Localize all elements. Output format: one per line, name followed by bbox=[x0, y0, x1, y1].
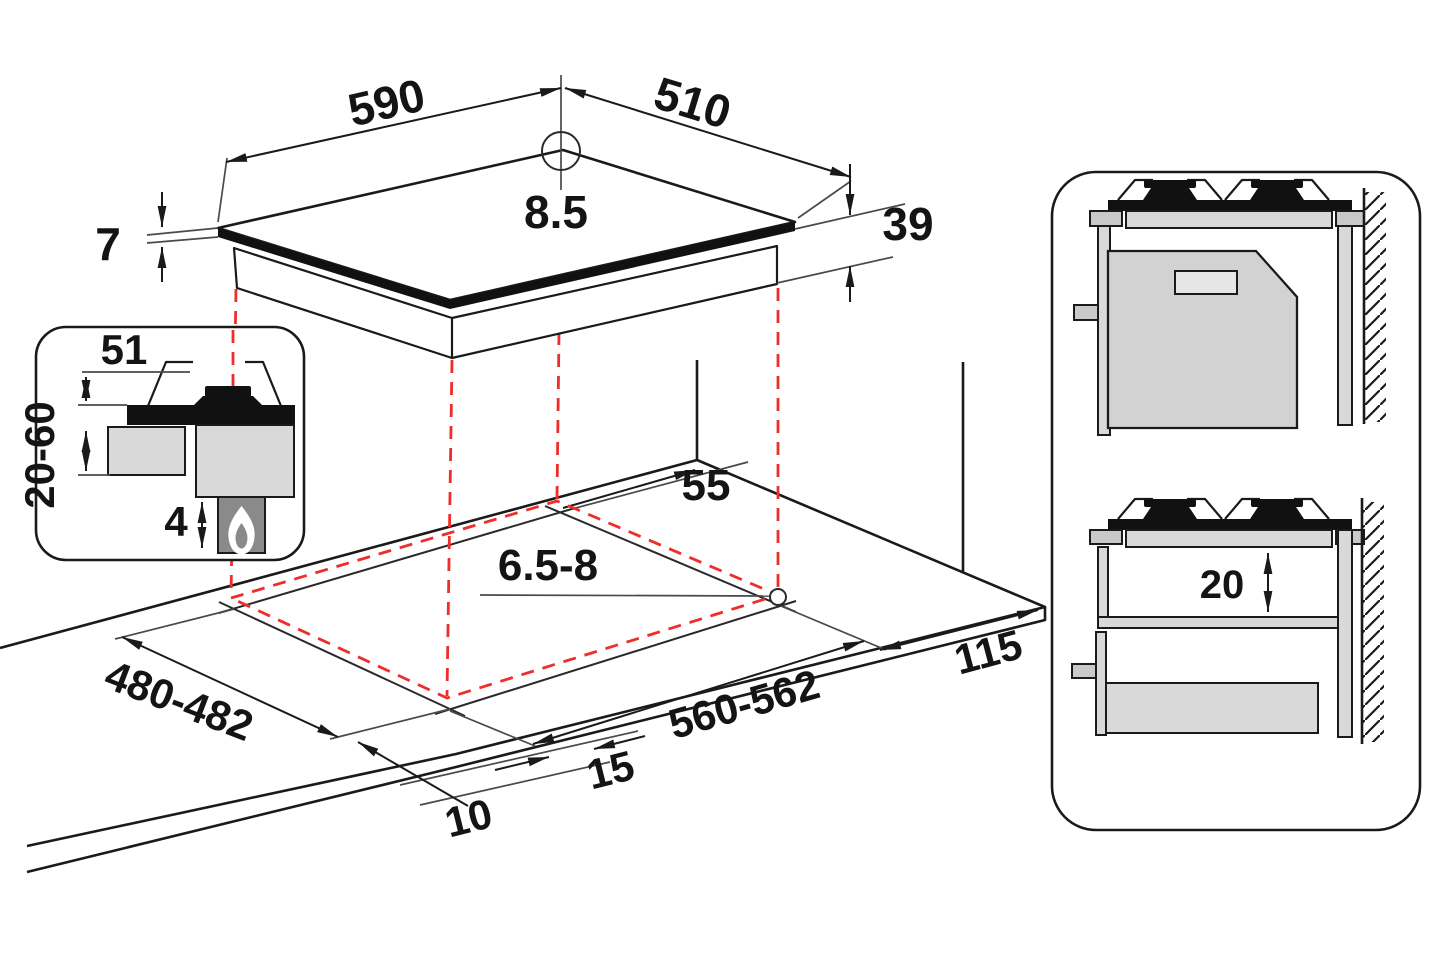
dim-label-glass-thickness: 7 bbox=[95, 218, 121, 270]
cutout-corner-hole-marker bbox=[770, 589, 786, 605]
dim-label-hob-width: 590 bbox=[343, 68, 429, 136]
oven-vent bbox=[1175, 271, 1237, 294]
dim-label-hob-depth: 510 bbox=[648, 67, 737, 139]
cutout-dashed-outline bbox=[231, 501, 778, 698]
hob-section-glass bbox=[127, 405, 295, 425]
dim-label-worktop-thickness-range: 6.5-8 bbox=[498, 541, 598, 590]
fixing-clamp-left bbox=[1090, 211, 1122, 226]
hob-body-section bbox=[196, 425, 294, 497]
hob-isometric-view: 590 510 8.5 7 39 bbox=[95, 67, 933, 358]
side-view-panel: 20 bbox=[1052, 172, 1420, 830]
worktop-section bbox=[108, 427, 185, 475]
dim-label-rear-clearance: 55 bbox=[682, 461, 731, 510]
installation-diagram: 51 20-60 4 590 510 8.5 7 39 55 6.5 bbox=[0, 0, 1445, 963]
separator-shelf bbox=[1098, 617, 1340, 628]
dim-label-front-edge-gap: 10 bbox=[440, 789, 497, 846]
cabinet-tab-left bbox=[1074, 305, 1098, 320]
hob-glass-profile bbox=[1108, 519, 1352, 530]
drawer-profile bbox=[1106, 683, 1318, 733]
dim-label-shelf-clearance: 20 bbox=[1200, 563, 1245, 607]
burner-detail-inset: 51 20-60 4 bbox=[16, 326, 304, 560]
hob-glass-profile bbox=[1108, 200, 1352, 211]
dim-label-hole-offset: 8.5 bbox=[524, 186, 588, 238]
cutout-solid-outline bbox=[219, 506, 796, 716]
hob-tray-profile bbox=[1126, 211, 1332, 228]
side-view-oven-installation bbox=[1074, 180, 1386, 435]
wall-hatching bbox=[1362, 502, 1384, 742]
side-view-shelf-installation: 20 bbox=[1072, 498, 1384, 744]
fixing-clamp-right bbox=[1336, 211, 1364, 226]
hob-tray-profile bbox=[1126, 530, 1332, 547]
dim-label-bottom-clearance: 4 bbox=[164, 498, 188, 545]
dim-label-cutout-width: 560-562 bbox=[663, 660, 824, 748]
dim-label-body-height: 39 bbox=[882, 198, 933, 250]
cabinet-rail-left-upper bbox=[1098, 547, 1108, 625]
dim-label-worktop-thickness: 20-60 bbox=[16, 401, 63, 508]
cabinet-rail-right bbox=[1338, 226, 1352, 425]
fixing-clamp-left bbox=[1090, 530, 1122, 544]
cabinet-rail-left-lower bbox=[1096, 632, 1106, 735]
dim-label-cutout-depth: 480-482 bbox=[99, 651, 260, 750]
cabinet-rail-right bbox=[1338, 530, 1352, 737]
wall-hatching bbox=[1364, 192, 1386, 422]
dim-label-burner-height: 51 bbox=[101, 326, 148, 373]
cabinet-tab-left bbox=[1072, 664, 1096, 678]
dim-label-front-line-gap: 15 bbox=[582, 741, 639, 798]
